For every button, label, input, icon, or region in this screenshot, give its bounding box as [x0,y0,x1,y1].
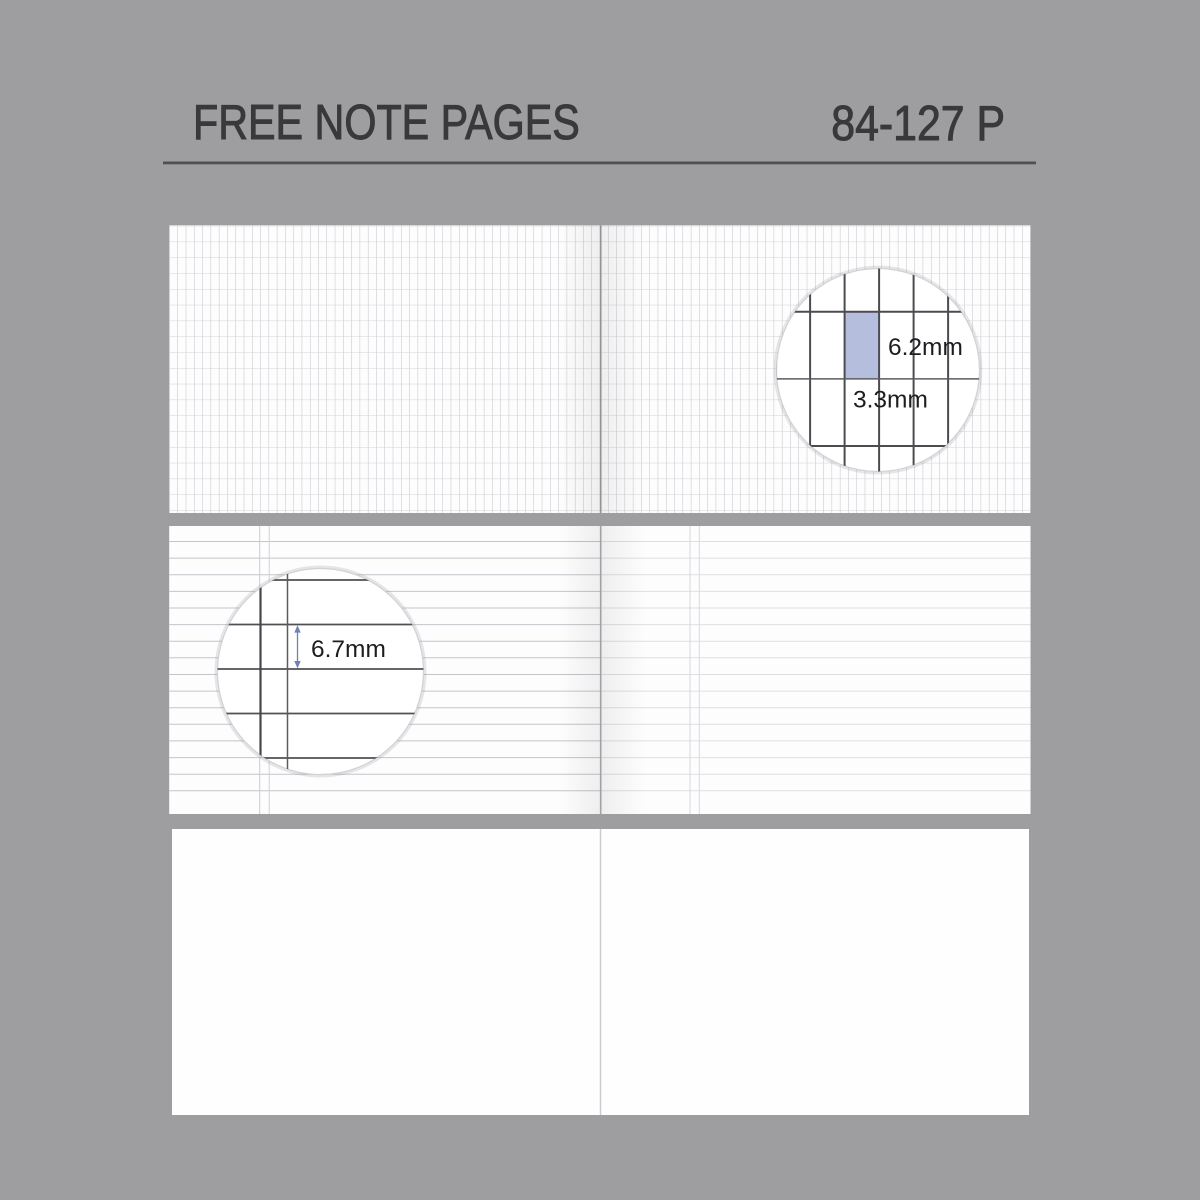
svg-text:6.2mm: 6.2mm [888,334,963,361]
svg-text:3.3mm: 3.3mm [853,387,928,414]
svg-text:84-127 P: 84-127 P [831,95,1005,150]
svg-text:FREE NOTE PAGES: FREE NOTE PAGES [193,95,580,150]
svg-text:6.7mm: 6.7mm [311,636,386,663]
